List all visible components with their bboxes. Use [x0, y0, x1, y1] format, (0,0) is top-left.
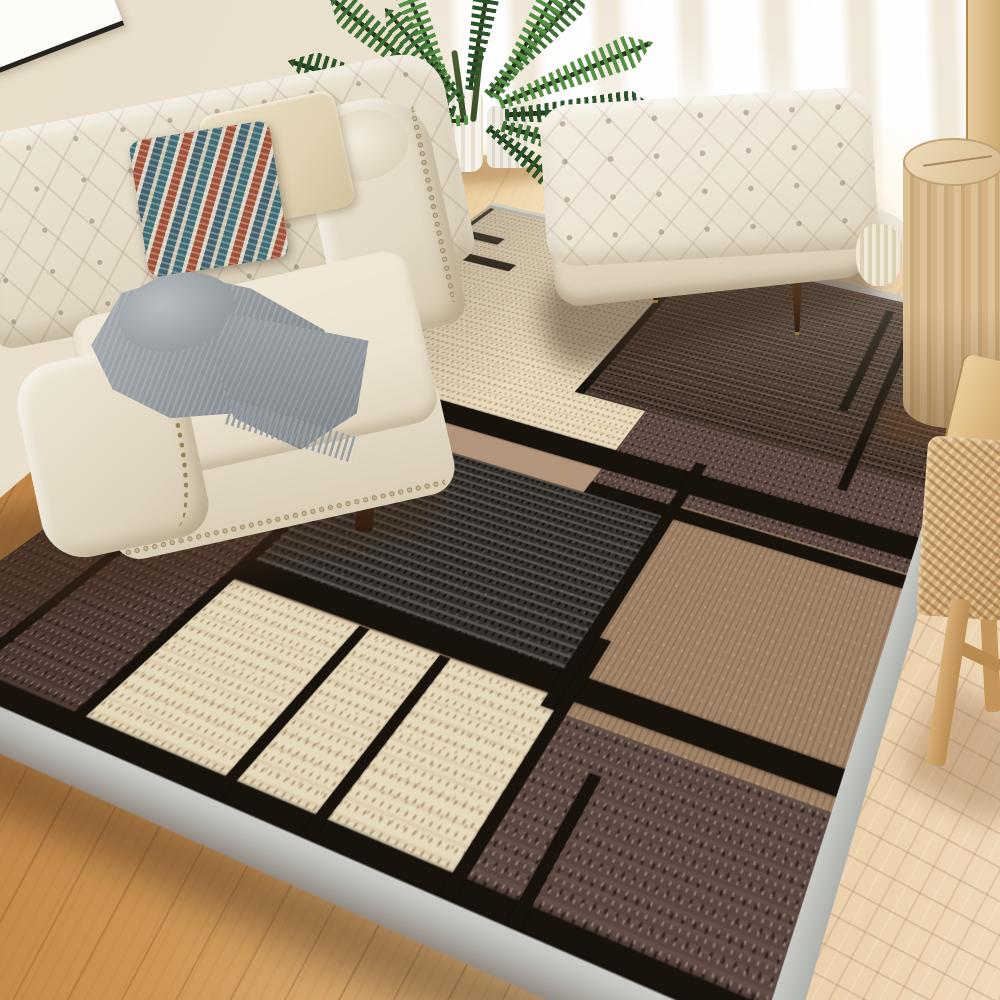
chair-woven-seat: [916, 435, 1000, 621]
rattan-chair: [0, 0, 1000, 1000]
chair-front-leg: [925, 597, 971, 766]
living-room-photo: [0, 0, 1000, 1000]
